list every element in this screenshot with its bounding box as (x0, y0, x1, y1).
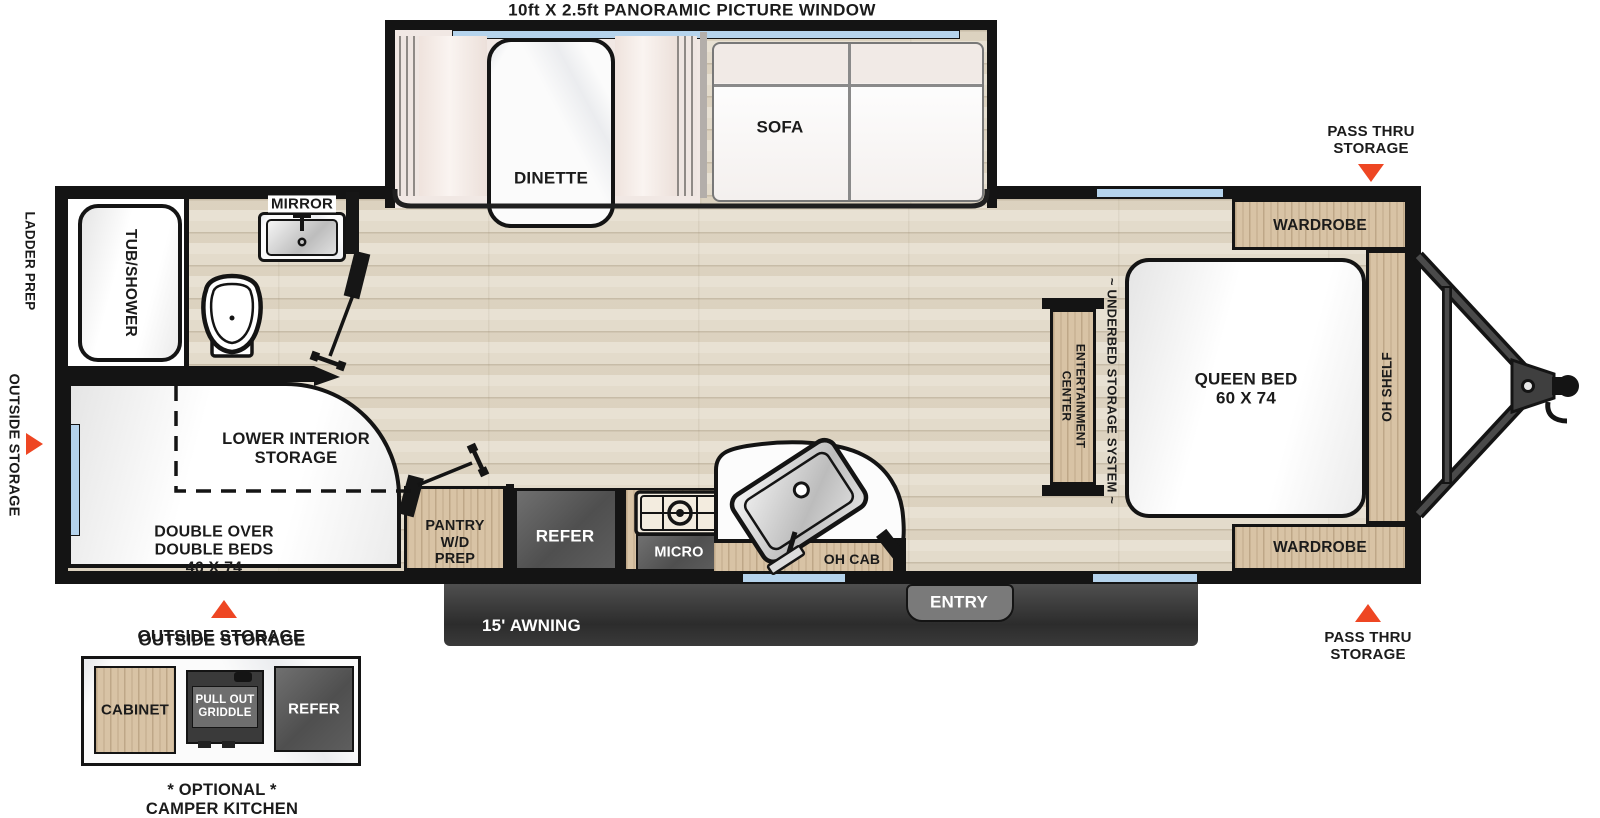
pass-thru-bottom-arrow (1355, 604, 1381, 622)
outside-storage-bottom-arrow (211, 600, 237, 618)
pass-thru-bottom-line1: PASS THRU (1324, 629, 1411, 646)
pantry-line1: PANTRY (425, 518, 484, 535)
page-title: 10ft X 2.5ft PANORAMIC PICTURE WINDOW (508, 0, 876, 19)
camper-griddle-line1: PULL OUT (196, 694, 255, 707)
sofa-label: SOFA (756, 117, 803, 136)
wardrobe-top-label: WARDROBE (1273, 217, 1367, 235)
pass-thru-bottom-label: PASS THRU STORAGE (1324, 629, 1411, 663)
pantry-line2: W/D (425, 535, 484, 552)
micro-label: MICRO (654, 545, 703, 562)
camper-griddle-foot-2 (222, 741, 235, 748)
camper-griddle-line2: GRIDDLE (196, 707, 255, 720)
camper-cabinet-label: CABINET (101, 701, 169, 718)
entry-label: ENTRY (930, 592, 988, 611)
entertainment-line2: CENTER (1059, 344, 1073, 448)
floorplan-canvas: 10ft X 2.5ft PANORAMIC PICTURE WINDOW DI… (0, 0, 1600, 818)
awning-label: 15' AWNING (482, 616, 581, 635)
camper-caption-line2: CAMPER KITCHEN (146, 800, 298, 818)
toilet-icon (203, 276, 260, 356)
wardrobe-bottom-label: WARDROBE (1273, 539, 1367, 557)
pass-thru-top-line1: PASS THRU (1327, 123, 1414, 140)
camper-refer-label: REFER (288, 700, 340, 717)
bath-wall-jamb (314, 366, 340, 386)
camper-griddle-foot-1 (198, 741, 211, 748)
pass-thru-top-arrow (1358, 164, 1384, 182)
double-beds-label: DOUBLE OVER DOUBLE BEDS 46 X 74 (154, 524, 274, 579)
camper-kitchen-heading: OUTSIDE STORAGE (138, 630, 305, 649)
pass-thru-top-line2: STORAGE (1327, 140, 1414, 157)
outside-storage-side-label: OUTSIDE STORAGE (5, 374, 22, 517)
camper-griddle-knob (234, 672, 252, 682)
mirror-label: MIRROR (268, 195, 336, 212)
camper-caption: * OPTIONAL * CAMPER KITCHEN (146, 781, 298, 818)
camper-griddle-label: PULL OUT GRIDDLE (196, 694, 255, 720)
hitch (1418, 256, 1579, 514)
double-beds-line3: 46 X 74 (154, 560, 274, 578)
outside-storage-side-arrow (26, 433, 43, 455)
oh-shelf-label: OH SHELF (1379, 352, 1394, 422)
queen-bed-label: QUEEN BED 60 X 74 (1195, 370, 1298, 409)
stove-icon (636, 492, 724, 534)
refer-label: REFER (536, 526, 595, 545)
lower-storage-line1: LOWER INTERIOR (222, 430, 370, 449)
oh-cab-label: OH CAB (824, 552, 880, 568)
pass-thru-top-label: PASS THRU STORAGE (1327, 123, 1414, 157)
queen-bed-line1: QUEEN BED (1195, 370, 1298, 389)
lower-storage-line2: STORAGE (222, 449, 370, 468)
pass-thru-bottom-line2: STORAGE (1324, 646, 1411, 663)
ladder-prep-label: LADDER PREP (22, 212, 37, 311)
dinette-label: DINETTE (514, 168, 588, 187)
tub-shower-label: TUB/SHOWER (121, 229, 139, 337)
camper-caption-line1: * OPTIONAL * (146, 781, 298, 800)
pantry-label: PANTRY W/D PREP (425, 518, 484, 568)
bunk-room-door (398, 443, 489, 518)
bathroom-door (310, 192, 371, 371)
entertainment-line1: ENTERTAINMENT (1073, 344, 1087, 448)
pantry-line3: PREP (425, 551, 484, 568)
lower-storage-label: LOWER INTERIOR STORAGE (222, 430, 370, 468)
slideout-lip (395, 189, 987, 206)
double-beds-line1: DOUBLE OVER (154, 524, 274, 542)
underbed-storage-label: ~ UNDERBED STORAGE SYSTEM ~ (1104, 278, 1119, 504)
double-beds-line2: DOUBLE BEDS (154, 542, 274, 560)
queen-bed-line2: 60 X 74 (1195, 389, 1298, 408)
entertainment-label: ENTERTAINMENT CENTER (1059, 344, 1086, 448)
bath-faucet-icon (293, 216, 311, 245)
